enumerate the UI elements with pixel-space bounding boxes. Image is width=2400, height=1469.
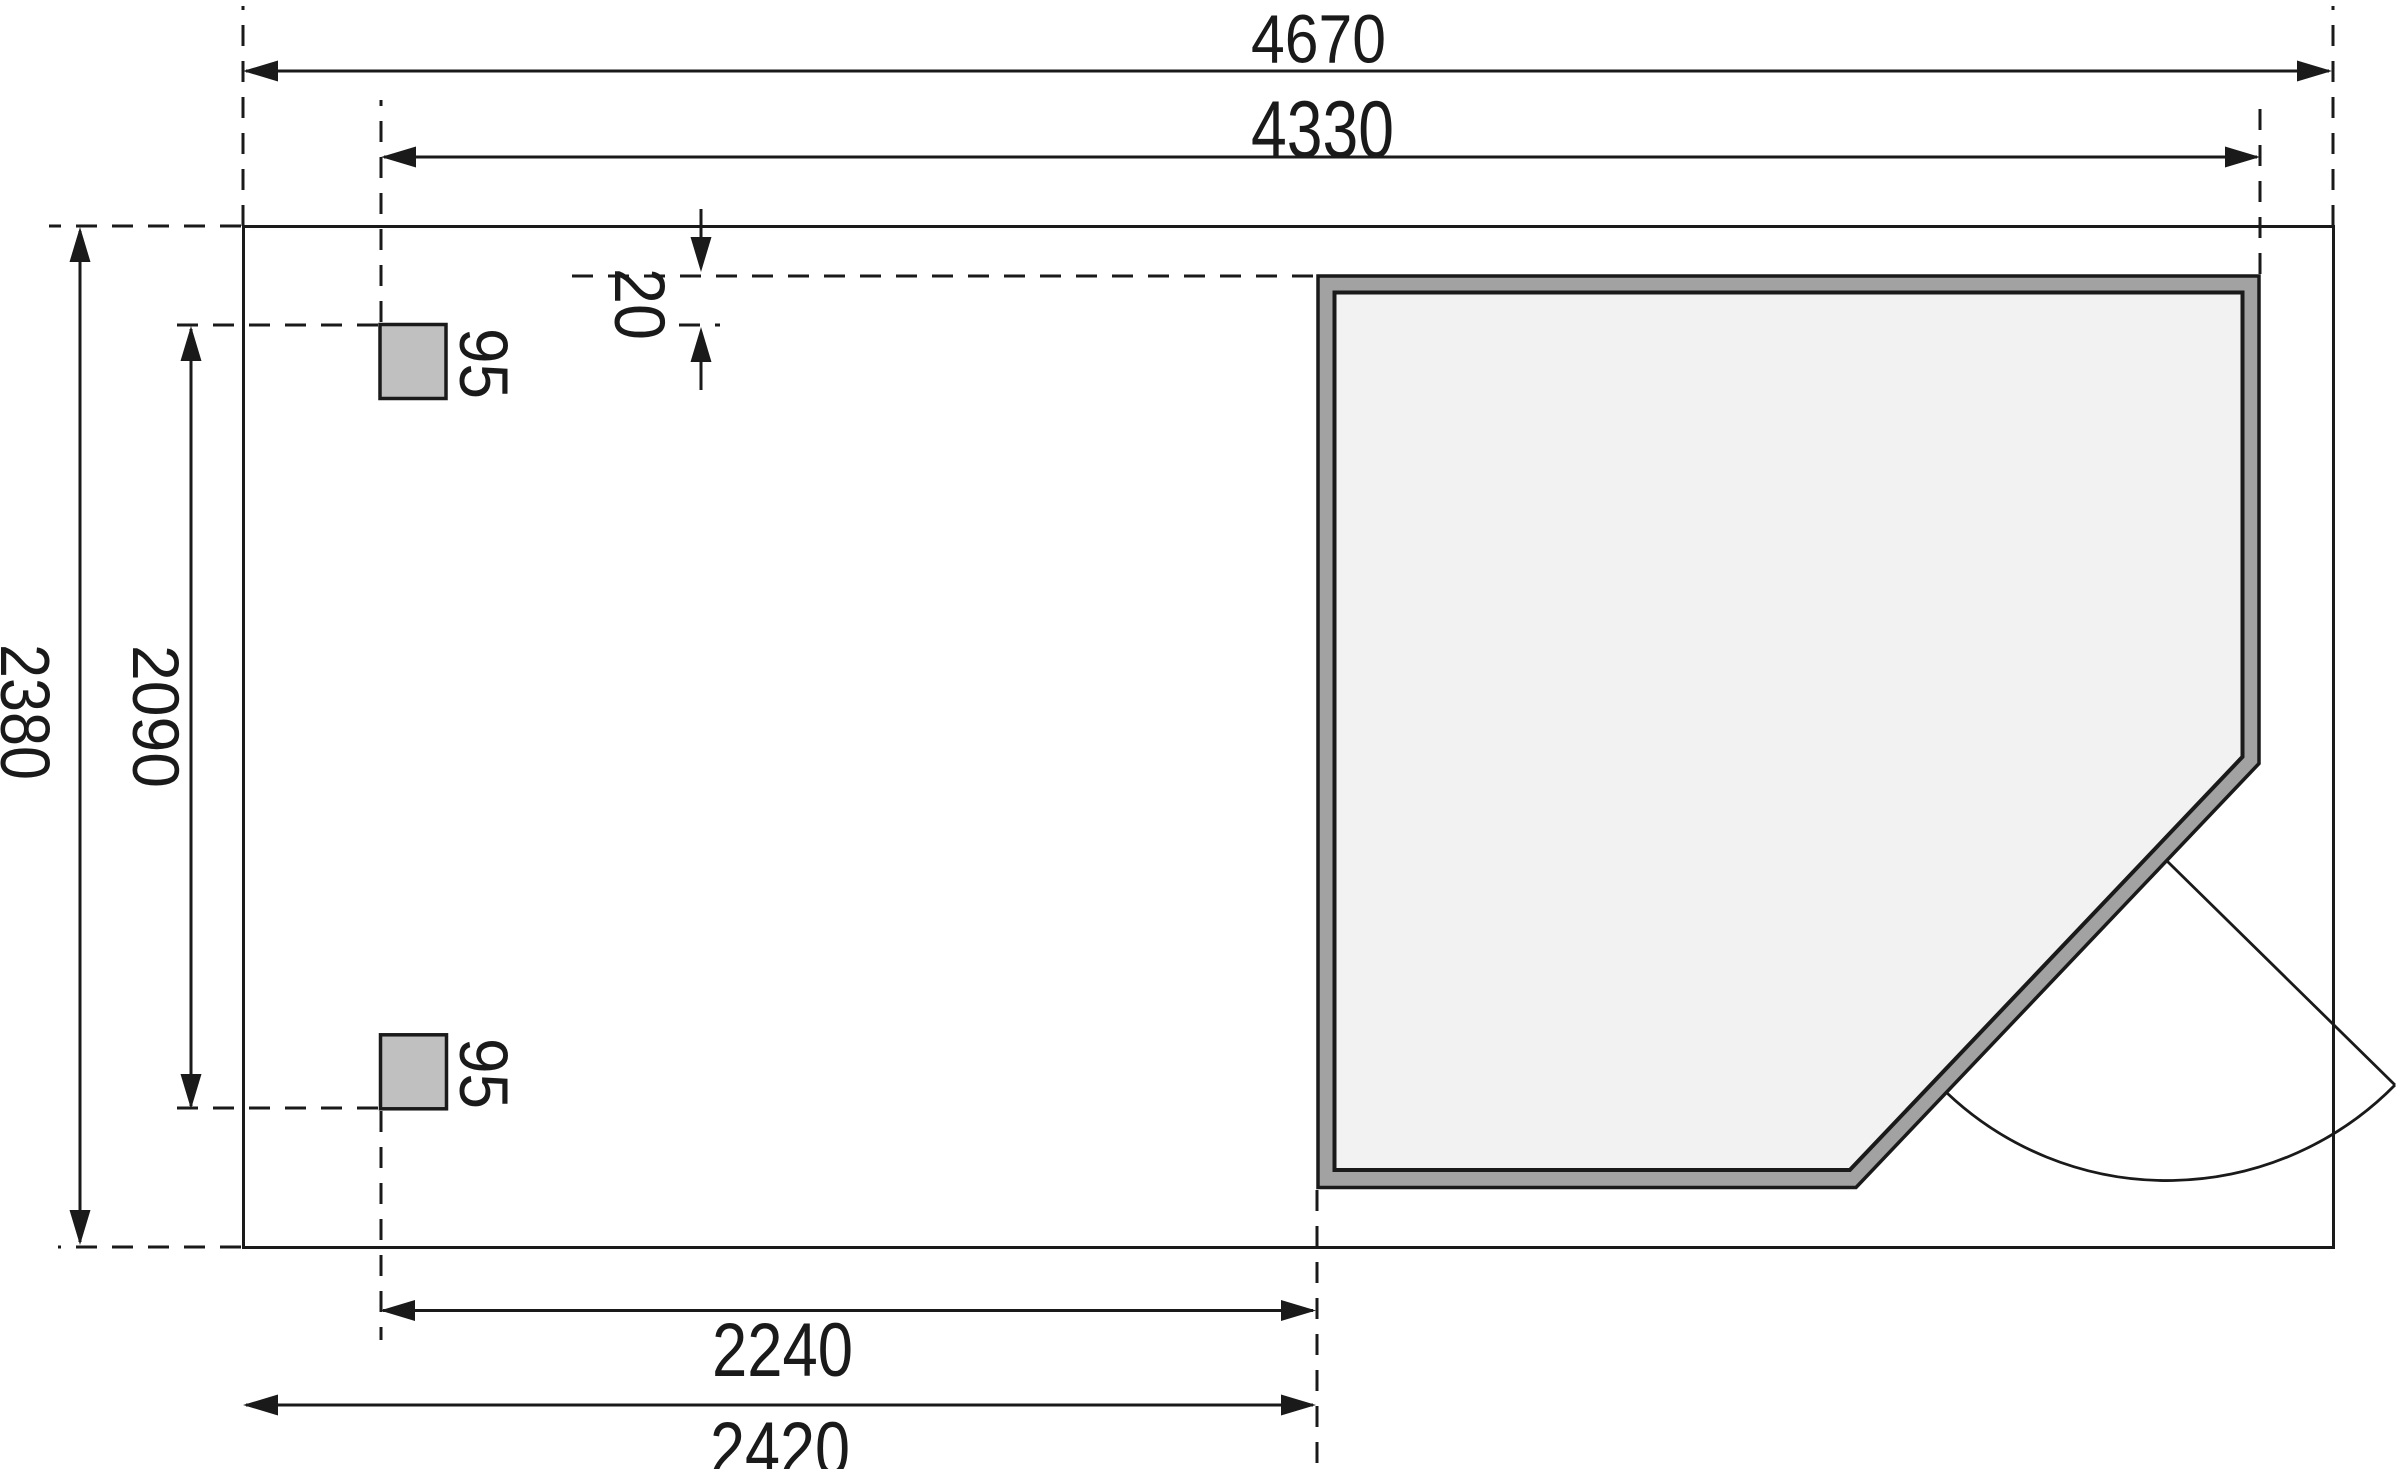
svg-text:2090: 2090	[119, 645, 193, 788]
svg-text:4670: 4670	[1251, 1, 1386, 78]
svg-text:95: 95	[445, 1038, 522, 1109]
svg-text:20: 20	[599, 268, 678, 340]
svg-text:95: 95	[445, 328, 522, 399]
svg-text:4330: 4330	[1251, 85, 1394, 175]
svg-text:2240: 2240	[712, 1308, 853, 1393]
svg-text:2420: 2420	[710, 1407, 850, 1469]
svg-text:2380: 2380	[0, 644, 64, 780]
